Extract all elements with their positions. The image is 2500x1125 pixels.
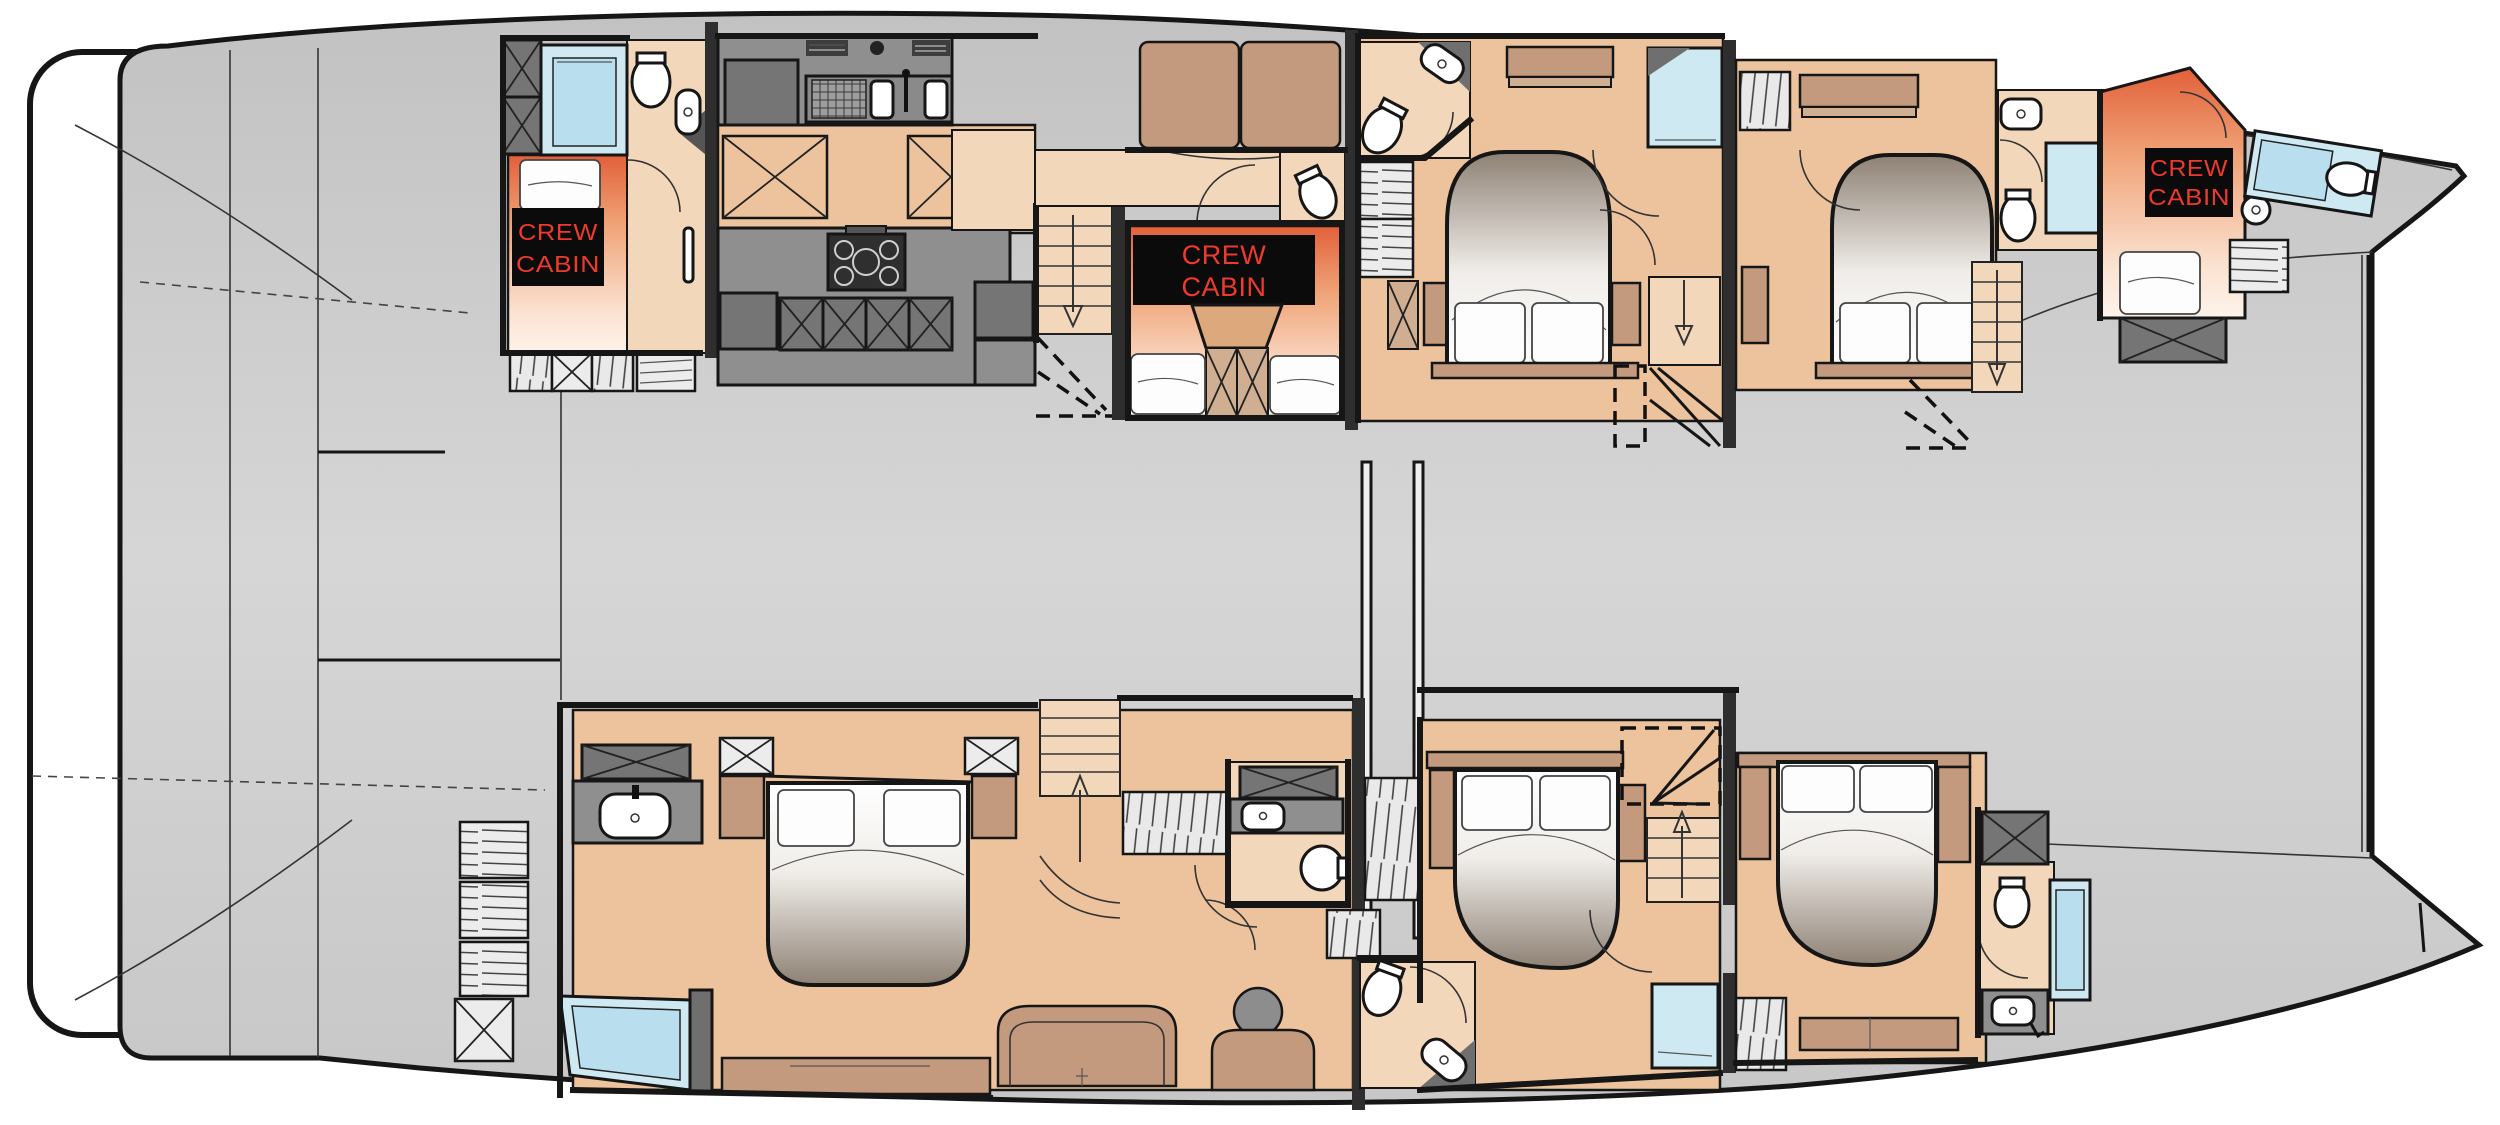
sofa [998, 1006, 1176, 1086]
galley-island [718, 226, 1010, 385]
low-cabinet [1800, 1018, 1958, 1050]
sink-icon [2001, 99, 2041, 129]
sink-icon [1230, 799, 1343, 833]
floor-hatch [723, 136, 827, 218]
bathroom [1357, 958, 1475, 1090]
crew-bed [2120, 252, 2200, 314]
label-line2: CABIN [2148, 184, 2230, 210]
vanity [573, 745, 702, 843]
sink-icon [1982, 990, 2048, 1036]
aft-crew-cabin: CREW CABIN [503, 22, 718, 391]
label-line1: CREW [518, 219, 598, 245]
wardrobe [2120, 318, 2226, 362]
toilet-icon [2001, 190, 2035, 241]
headboard-cabinet [1507, 47, 1613, 77]
island-cabinets [780, 298, 952, 350]
bathroom [1355, 40, 1470, 160]
low-cabinet [722, 1058, 990, 1094]
window [541, 45, 627, 155]
crew-cabin-label-aft: CREW CABIN [512, 208, 604, 286]
floorplan-canvas: CREW CABIN [0, 0, 2500, 1125]
wardrobe [1140, 42, 1340, 159]
crew-bed [1131, 354, 1205, 414]
foot-bench [1432, 363, 1638, 378]
galley-back-counter [718, 36, 952, 125]
window [1648, 48, 1722, 147]
window [560, 990, 712, 1093]
aft-lockers [510, 353, 695, 391]
stove-icon [828, 226, 905, 290]
label-line1: CREW [2150, 155, 2228, 181]
toilet-icon [632, 53, 670, 107]
label-line1: CREW [1182, 240, 1267, 270]
toilet-icon [1995, 878, 2029, 927]
label-line2: CABIN [516, 251, 600, 277]
label-line2: CABIN [1181, 272, 1266, 302]
galley-sink-icon [806, 69, 952, 122]
bathroom [1978, 812, 2054, 1036]
headboard-cabinet [1427, 752, 1623, 768]
crew-bed [1270, 356, 1341, 414]
crew-cabin-label-bow: CREW CABIN [2145, 148, 2233, 217]
crew-bed [520, 160, 600, 210]
master-cabin [455, 705, 1353, 1095]
headboard-cabinet [1800, 75, 1918, 107]
catamaran-deck-plan: CREW CABIN [0, 0, 2500, 1125]
crew-cabin-label-mid: CREW CABIN [1133, 235, 1315, 305]
burner-icon [870, 41, 884, 55]
